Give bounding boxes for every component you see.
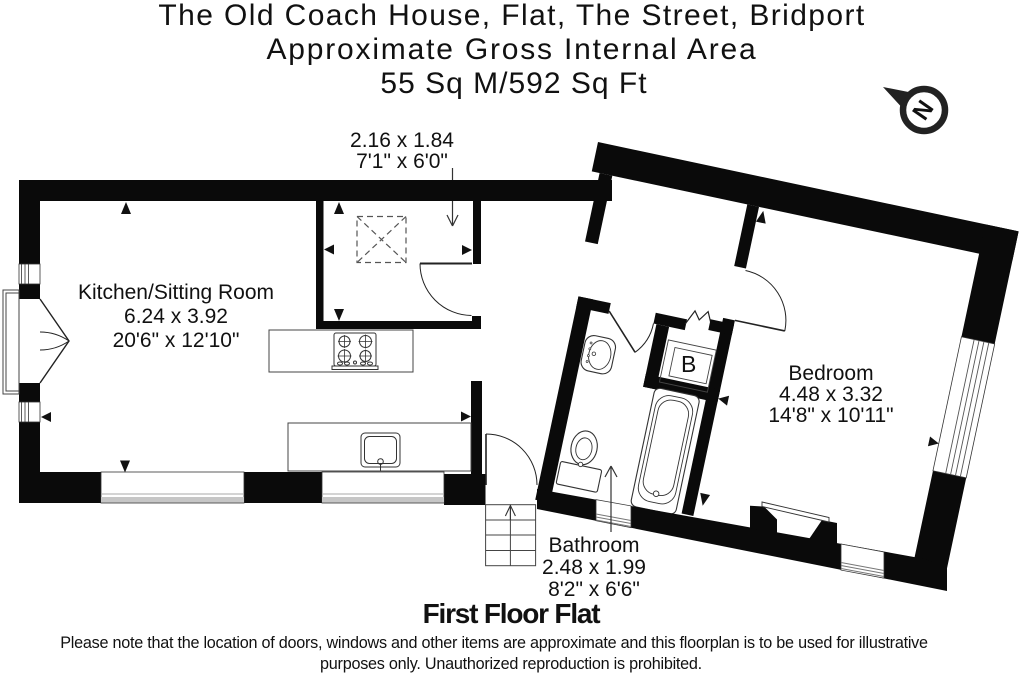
svg-text:6.24 x 3.92: 6.24 x 3.92	[124, 305, 228, 328]
svg-text:20'6" x 12'10": 20'6" x 12'10"	[113, 329, 240, 352]
svg-text:Please note that the location: Please note that the location of doors, …	[60, 634, 928, 652]
svg-text:Kitchen/Sitting Room: Kitchen/Sitting Room	[78, 281, 274, 304]
svg-text:55 Sq M/592 Sq Ft: 55 Sq M/592 Sq Ft	[380, 67, 647, 100]
svg-text:4.48 x 3.32: 4.48 x 3.32	[779, 383, 883, 406]
svg-text:14'8" x 10'11": 14'8" x 10'11"	[768, 404, 893, 427]
svg-text:2.16 x 1.84: 2.16 x 1.84	[350, 129, 454, 152]
svg-text:The Old Coach House, Flat, The: The Old Coach House, Flat, The Street, B…	[158, 0, 865, 32]
svg-text:7'1" x 6'0": 7'1" x 6'0"	[356, 150, 448, 173]
svg-text:Bathroom: Bathroom	[548, 534, 639, 557]
svg-text:Approximate Gross Internal Are: Approximate Gross Internal Area	[266, 33, 757, 66]
svg-text:Bedroom: Bedroom	[788, 362, 873, 385]
svg-text:B: B	[681, 351, 696, 377]
svg-text:First Floor Flat: First Floor Flat	[423, 598, 601, 629]
svg-text:2.48 x 1.99: 2.48 x 1.99	[542, 556, 646, 579]
svg-text:purposes only. Unauthorized re: purposes only. Unauthorized reproduction…	[320, 655, 702, 673]
